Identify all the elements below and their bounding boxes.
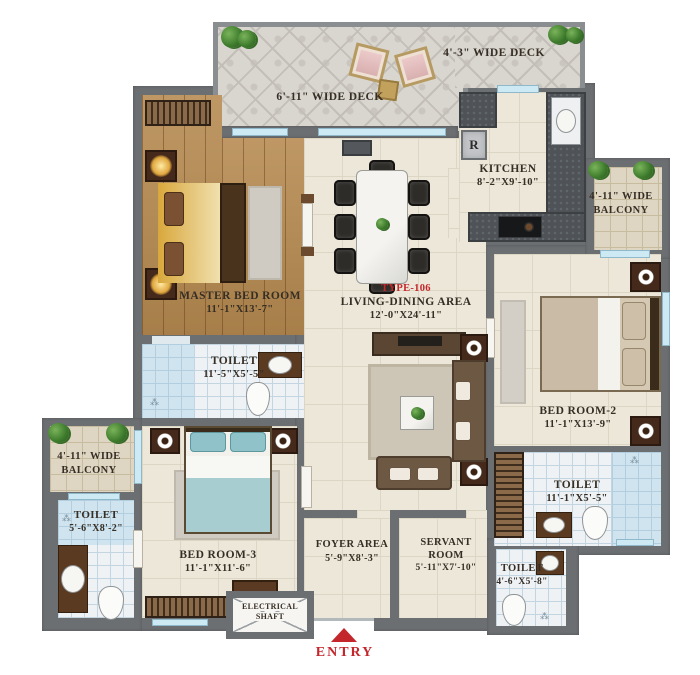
living-side-table-top bbox=[460, 334, 488, 362]
window-bedroom2 bbox=[662, 292, 670, 346]
dining-centerpiece-plant-icon bbox=[376, 218, 388, 230]
balcony-right-line2: BALCONY bbox=[589, 204, 652, 218]
balcony-left-line2: BALCONY bbox=[57, 464, 120, 478]
toilet-bedroom2-label: TOILET 11'-1"X5'-5" bbox=[546, 478, 607, 505]
servant-room-label: SERVANT ROOM 5'-11"X7'-10" bbox=[416, 536, 477, 575]
kitchen-sink bbox=[551, 97, 581, 145]
coffee-table-plant-icon bbox=[411, 407, 423, 419]
lamp-icon bbox=[638, 269, 654, 285]
entry-threshold bbox=[312, 618, 374, 621]
kitchen-door-opening bbox=[448, 168, 459, 238]
bedroom2-nightstand-bottom bbox=[630, 416, 661, 446]
dining-chair bbox=[334, 248, 356, 274]
toilet-bedroom2-shower bbox=[612, 452, 661, 546]
window-kitchen bbox=[497, 85, 539, 93]
electrical-shaft: ELECTRICAL SHAFT bbox=[226, 591, 314, 639]
plant-icon bbox=[106, 423, 127, 443]
stove-burner-icon bbox=[524, 222, 534, 232]
electrical-shaft-label: ELECTRICAL SHAFT bbox=[233, 602, 307, 621]
bedroom2-rug bbox=[500, 300, 526, 404]
tv-icon bbox=[398, 336, 442, 346]
deck-chair-cushion bbox=[356, 50, 383, 77]
living-dining-dims: 12'-0"X24'-11" bbox=[341, 309, 472, 322]
master-wardrobe bbox=[145, 100, 211, 126]
washbasin-icon bbox=[268, 356, 292, 374]
foyer-name: FOYER AREA bbox=[316, 538, 389, 552]
loveseat-bottom bbox=[376, 456, 452, 490]
lamp-icon bbox=[638, 423, 654, 439]
sink-bowl-icon bbox=[556, 109, 576, 133]
servant-door-opening bbox=[466, 510, 487, 518]
shower-head-icon: ⁂ bbox=[630, 456, 639, 465]
sofa-cushion bbox=[456, 422, 470, 440]
balcony-left-line1: 4'-11" WIDE bbox=[57, 450, 120, 464]
sofa-right bbox=[452, 360, 486, 462]
bedroom2-pillow-2 bbox=[622, 348, 646, 386]
refrigerator: R bbox=[461, 130, 487, 160]
kitchen-label: KITCHEN 8'-2"X9'-10" bbox=[477, 162, 539, 189]
toilet-servant-name: TOILET bbox=[496, 562, 547, 576]
foyer-opening bbox=[357, 510, 390, 518]
master-bed-pillow-1 bbox=[164, 192, 184, 226]
master-bed-footboard bbox=[220, 183, 246, 283]
balcony-left-label: 4'-11" WIDE BALCONY bbox=[57, 450, 120, 478]
bedroom3-nightstand-right bbox=[268, 428, 298, 454]
dining-chair bbox=[408, 248, 430, 274]
bedroom3-nightstand-left bbox=[150, 428, 180, 454]
plant-icon bbox=[548, 25, 568, 44]
living-console bbox=[342, 140, 372, 156]
dining-chair bbox=[408, 180, 430, 206]
washbasin-icon bbox=[543, 517, 565, 533]
toilet-left-dims: 5'-6"X8'-2" bbox=[69, 522, 123, 535]
servant-room-line2: ROOM bbox=[416, 549, 477, 562]
toilet-left-label: TOILET 5'-6"X8'-2" bbox=[69, 508, 123, 535]
toilet-master-label: TOILET 11'-5"X5'-5" bbox=[203, 354, 264, 381]
type-label: TYPE-106 bbox=[341, 282, 472, 295]
bedroom3-label: BED ROOM-3 11'-1"X11'-6" bbox=[179, 548, 256, 575]
bedroom2-dims: 11'-1"X13'-9" bbox=[539, 418, 616, 431]
master-bed-pillow-2 bbox=[164, 242, 184, 276]
floor-plan: R ⁂ ⁂ ⁂ ⁂ ELECTRICAL SHAFT bbox=[0, 0, 700, 675]
refrigerator-label: R bbox=[469, 137, 478, 153]
lamp-icon bbox=[466, 464, 482, 480]
bedroom3-pillow-1 bbox=[190, 432, 226, 452]
toilet-servant-label: TOILET 4'-6"X5'-8" bbox=[496, 562, 547, 589]
foyer-floor bbox=[304, 518, 390, 618]
bedroom3-pillow-2 bbox=[230, 432, 266, 452]
toilet-bedroom2-name: TOILET bbox=[546, 478, 607, 492]
master-door bbox=[302, 203, 313, 247]
sofa-cushion bbox=[456, 382, 470, 400]
bedroom3-dims: 11'-1"X11'-6" bbox=[179, 562, 256, 575]
balcony-right-label: 4'-11" WIDE BALCONY bbox=[589, 190, 652, 218]
bedroom3-wardrobe bbox=[145, 596, 231, 618]
master-bedroom-dims: 11'-1"X13'-7" bbox=[179, 303, 301, 316]
window-balcony-right bbox=[600, 250, 650, 258]
entry-label: ENTRY bbox=[316, 645, 375, 661]
lamp-glow-icon bbox=[150, 155, 172, 177]
kitchen-stove bbox=[498, 216, 542, 238]
toilet-master-dims: 11'-5"X5'-5" bbox=[203, 368, 264, 381]
window-bedroom3 bbox=[152, 619, 208, 626]
deck-right-label: 4'-3" WIDE DECK bbox=[443, 46, 545, 60]
foyer-dims: 5'-9"X8'-3" bbox=[316, 552, 389, 565]
toilet-master-door-opening bbox=[152, 336, 190, 344]
servant-room-dims: 5'-11"X7'-10" bbox=[416, 562, 477, 575]
toilet-bedroom2-dims: 11'-1"X5'-5" bbox=[546, 492, 607, 505]
lamp-icon bbox=[466, 340, 482, 356]
dining-chair bbox=[334, 214, 356, 240]
window-toilet-left bbox=[68, 493, 120, 500]
deck-top-name: 6'-11" WIDE DECK bbox=[276, 90, 383, 104]
balcony-right-line1: 4'-11" WIDE bbox=[589, 190, 652, 204]
deck-top-label: 6'-11" WIDE DECK bbox=[276, 90, 383, 104]
living-dining-name: LIVING-DINING AREA bbox=[341, 295, 472, 309]
bedroom3-name: BED ROOM-3 bbox=[179, 548, 256, 562]
shower-head-icon: ⁂ bbox=[150, 398, 159, 407]
toilet-left-name: TOILET bbox=[69, 508, 123, 522]
plant-icon bbox=[238, 30, 256, 48]
servant-room-line1: SERVANT bbox=[416, 536, 477, 549]
toilet-bedroom2-vanity bbox=[536, 512, 572, 538]
master-nightstand-top bbox=[145, 150, 177, 182]
master-door-frame-bottom bbox=[301, 247, 314, 256]
toilet-bedroom2-wardrobe bbox=[494, 452, 524, 538]
plant-icon bbox=[566, 27, 582, 43]
sofa-cushion bbox=[390, 468, 410, 480]
entry-arrow-icon bbox=[331, 628, 357, 642]
bedroom3-door bbox=[301, 466, 312, 508]
toilet-servant-dims: 4'-6"X5'-8" bbox=[496, 576, 547, 589]
window-deck-master bbox=[232, 128, 288, 136]
plant-icon bbox=[48, 423, 69, 443]
plant-icon bbox=[588, 161, 608, 179]
foyer-label: FOYER AREA 5'-9"X8'-3" bbox=[316, 538, 389, 565]
master-bed-rug bbox=[248, 186, 282, 280]
master-bedroom-name: MASTER BED ROOM bbox=[179, 289, 301, 303]
deck-right-name: 4'-3" WIDE DECK bbox=[443, 46, 545, 60]
dining-chair bbox=[334, 180, 356, 206]
bedroom2-pillow-1 bbox=[622, 302, 646, 340]
window-balcony-left bbox=[134, 430, 142, 484]
washbasin-icon bbox=[61, 565, 85, 593]
kitchen-counter-topleft bbox=[459, 92, 497, 128]
window-deck-living bbox=[318, 128, 446, 136]
bedroom2-name: BED ROOM-2 bbox=[539, 404, 616, 418]
living-side-table-bottom bbox=[460, 458, 488, 486]
bedroom2-label: BED ROOM-2 11'-1"X13'-9" bbox=[539, 404, 616, 431]
toilet-left-vanity bbox=[58, 545, 88, 613]
bedroom2-nightstand-top bbox=[630, 262, 661, 292]
lamp-icon bbox=[157, 433, 173, 449]
sofa-cushion bbox=[418, 468, 438, 480]
master-bedroom-label: MASTER BED ROOM 11'-1"X13'-7" bbox=[179, 289, 301, 316]
lamp-icon bbox=[275, 433, 291, 449]
plant-icon bbox=[633, 161, 653, 179]
kitchen-name: KITCHEN bbox=[477, 162, 539, 176]
master-door-frame-top bbox=[301, 194, 314, 203]
shower-head-icon: ⁂ bbox=[540, 612, 549, 621]
living-dining-label: TYPE-106 LIVING-DINING AREA 12'-0"X24'-1… bbox=[341, 282, 472, 322]
deck-chair-cushion bbox=[401, 53, 428, 80]
window-toilet-bedroom2 bbox=[616, 539, 654, 546]
toilet-master-name: TOILET bbox=[203, 354, 264, 368]
kitchen-dims: 8'-2"X9'-10" bbox=[477, 176, 539, 189]
dining-chair bbox=[408, 214, 430, 240]
toilet-left-door bbox=[133, 530, 143, 568]
